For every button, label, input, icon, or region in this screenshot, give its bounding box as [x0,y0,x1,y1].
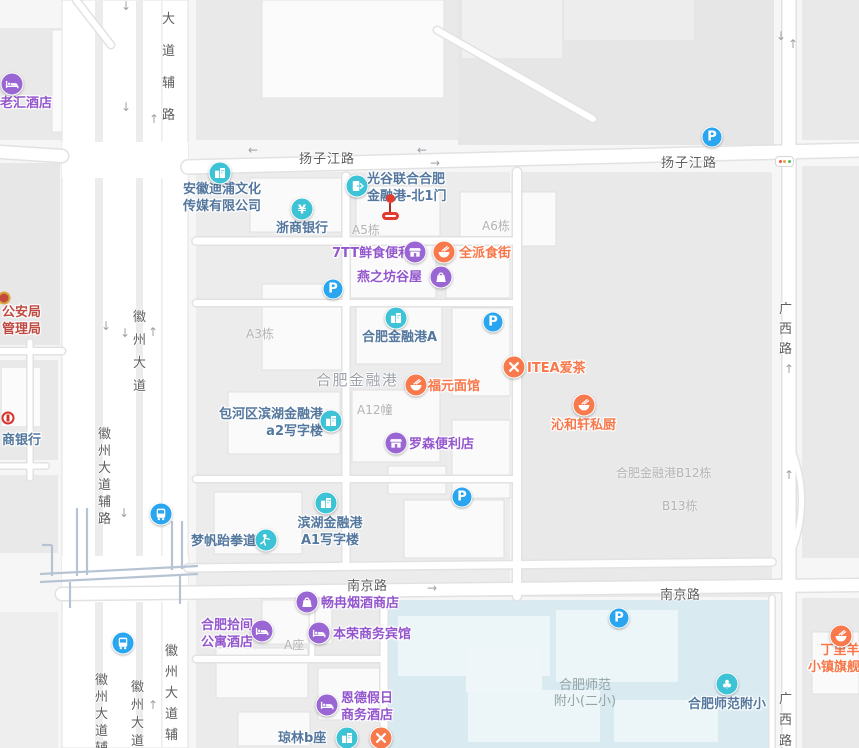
parking-icon[interactable]: P [702,127,723,148]
qinhexuan-kitchen-bowl-icon[interactable] [573,394,596,417]
parking-icon[interactable]: P [452,487,473,508]
benrong-hotel-bed-icon[interactable] [308,622,331,645]
building-label: A6栋 [482,217,510,234]
road-label: 广西路 [778,300,793,360]
binhu-a1-office-label[interactable]: 滨湖金融港 A1写字楼 [295,515,365,549]
zheshang-bank-label[interactable]: 浙商银行 [276,220,328,237]
lane-arrow-right-icon: → [430,157,440,169]
road-label: 徽州大道 [130,679,145,748]
ende-holiday-hotel-label[interactable]: 恩德假日 商务酒店 [341,690,393,724]
parking-icon[interactable]: P [483,312,504,333]
lane-arrow-up-icon: ↑ [788,38,798,50]
area-label-school: 合肥师范 附小(二小) [547,678,623,710]
building-label: 合肥金融港B12栋 [616,464,712,481]
road-label: 徽州大道辅路 [164,641,179,748]
lane-arrow-up-icon: ↑ [148,699,158,711]
road-label: 徽州大道 [132,306,147,398]
lane-arrow-right-icon: → [427,582,437,594]
road-label: 徽州大道辅路 [97,426,112,528]
road-label: 南京路 [660,584,701,603]
lane-arrow-down-icon: ↓ [119,507,129,519]
lane-arrow-down-icon: ↓ [776,30,786,42]
zheshang-bank-yen-icon[interactable]: ¥ [291,198,314,221]
ende-holiday-hotel-bed-icon[interactable] [316,694,339,717]
lane-arrow-down-icon: ↓ [101,320,111,332]
building-label: A3栋 [246,325,274,342]
bus-station-icon[interactable] [112,632,135,655]
bus-station-icon[interactable] [150,503,173,526]
building-label: B13栋 [662,497,698,514]
benrong-hotel-label[interactable]: 本荣商务宾馆 [333,626,411,643]
dingliyang-flagship-label[interactable]: 丁里羊 小镇旗舰店 [808,642,859,676]
hefei-shijian-hotel-label[interactable]: 合肥拾间 公寓酒店 [200,617,254,651]
lane-arrow-down-icon: ↓ [120,327,130,339]
shifan-fuxiao-label[interactable]: 合肥师范附小 [688,696,766,713]
road-label: 扬子江路 [299,148,355,167]
lane-arrow-up-icon: ↑ [784,469,794,481]
7tt-convenience-shop-icon[interactable] [404,241,427,264]
lane-arrow-left-icon: ← [248,144,258,156]
road-label: 南京路 [347,575,388,594]
changran-tobacco-bag-icon[interactable] [296,591,319,614]
lane-arrow-up-icon: ↑ [149,113,159,125]
anhui-dipu-media-label[interactable]: 安徽迪浦文化 传媒有限公司 [183,181,261,215]
government-label[interactable]: 公安局 管理局 [2,304,41,338]
dingliyang-flagship-bowl-icon[interactable] [830,625,853,648]
hefei-shijian-hotel-bed-icon[interactable] [251,620,274,643]
building-label: A12幢 [357,401,392,418]
yanzhifang-guwu-bag-icon[interactable] [430,266,453,289]
changran-tobacco-label[interactable]: 畅冉烟酒商店 [321,595,399,612]
qionglin-b-label[interactable]: 琼林b座 [278,730,326,747]
baohe-a2-office-building-icon[interactable] [320,410,343,433]
area-label-district: 合肥金融港 [316,369,399,390]
quanpai-food-street-label[interactable]: 全派食街 [459,245,511,262]
itea-tea-utensils-icon[interactable] [503,356,526,379]
cmb-bank-logo-icon [2,412,15,425]
cmb-bank-label[interactable]: 商银行 [2,432,41,449]
sw-restaurant-utensils-icon[interactable] [370,727,393,748]
lane-arrow-down-icon: ↓ [121,101,131,113]
quanpai-food-street-bowl-icon[interactable] [433,241,456,264]
lane-arrow-left-icon: ← [417,144,427,156]
baohe-a2-office-label[interactable]: 包河区滨湖金融港 a2写字楼 [217,406,323,440]
anhui-dipu-media-building-icon[interactable] [209,162,232,185]
fuyuan-noodles-label[interactable]: 福元面馆 [428,378,480,395]
mengfan-taekwondo-label[interactable]: 梦帆跆拳道 [191,533,256,550]
yanzhifang-guwu-label[interactable]: 燕之坊谷屋 [357,269,422,286]
parking-icon[interactable]: P [323,279,344,300]
guanggu-north-gate1-label[interactable]: 光谷联合合肥 金融港-北1门 [367,171,446,205]
hefei-jinronggang-a-building-icon[interactable] [385,307,408,330]
road-label: 扬子江路 [661,152,717,171]
guanggu-north-gate1-door-icon[interactable] [346,175,369,198]
shifan-fuxiao-tree-icon[interactable]: ♣ [716,673,739,696]
mengfan-taekwondo-person-icon[interactable] [255,529,278,552]
lane-arrow-down-icon: ↓ [121,0,131,12]
itea-tea-label[interactable]: ITEA爱茶 [527,360,586,377]
traffic-light-icon [775,156,794,167]
road-label: 徽州大道辅路 [94,672,109,748]
qinhexuan-kitchen-label[interactable]: 沁和轩私厨 [551,417,616,434]
laohui-hotel-bed-icon[interactable] [1,73,24,96]
laohui-hotel-label[interactable]: 老汇酒店 [0,95,52,112]
building-label: A座 [284,636,304,653]
hefei-jinronggang-a-label[interactable]: 合肥金融港A [362,329,437,346]
map-canvas[interactable]: 老汇酒店安徽迪浦文化 传媒有限公司¥浙商银行光谷联合合肥 金融港-北1门7TT鲜… [0,0,859,748]
road-label: 广西路 [778,689,793,748]
lawson-convenience-label[interactable]: 罗森便利店 [409,436,474,453]
selected-location-marker[interactable] [381,194,399,220]
lawson-convenience-shop-icon[interactable] [385,432,408,455]
binhu-a1-office-building-icon[interactable] [315,492,338,515]
7tt-convenience-label[interactable]: 7TT鲜食便利 [332,245,411,262]
road-label: 大道辅路 [161,4,176,132]
building-label: A5栋 [352,221,380,238]
parking-icon[interactable]: P [609,608,630,629]
lane-arrow-up-icon: ↑ [148,326,158,338]
qionglin-b-building-icon[interactable] [336,727,359,748]
lane-arrow-up-icon: ↑ [784,363,794,375]
fuyuan-noodles-bowl-icon[interactable] [405,374,428,397]
